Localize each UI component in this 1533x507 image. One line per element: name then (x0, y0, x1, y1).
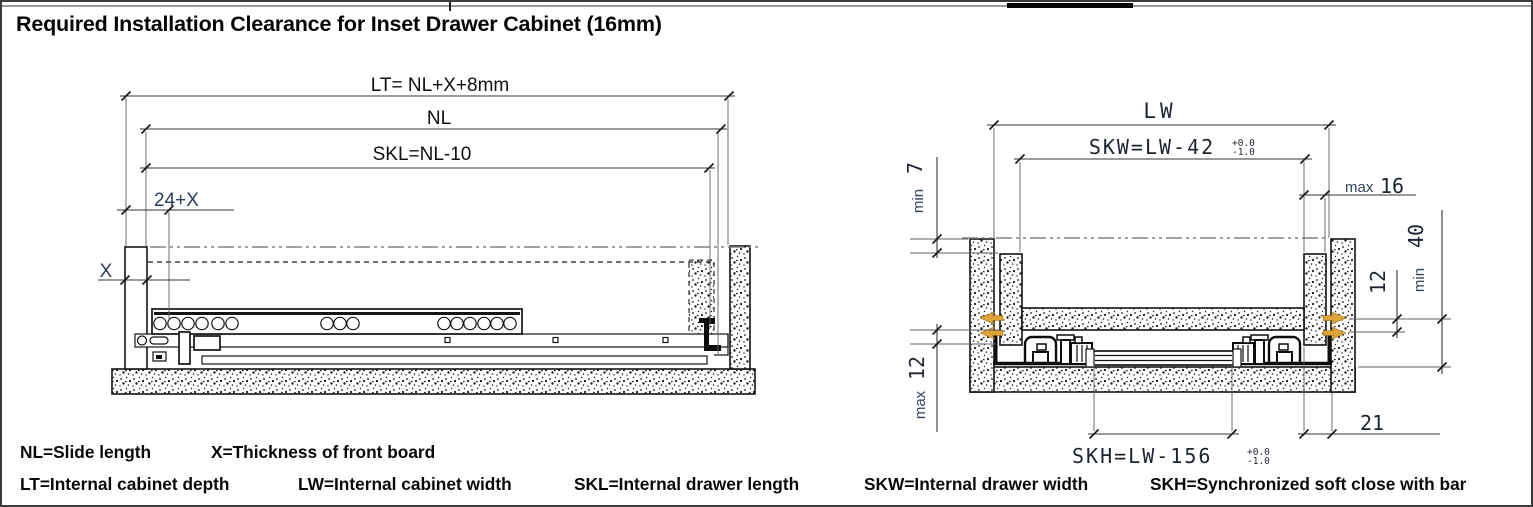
dim-label-21: 21 (1360, 411, 1384, 435)
dim-label-min7-value: 7 (903, 162, 927, 174)
dim-label-min40-word: min (1411, 268, 1428, 292)
dim-label-max12-word: max (912, 390, 929, 419)
dim-label-lt: LT= NL+X+8mm (371, 75, 510, 96)
legend-lt: LT=Internal cabinet depth (20, 474, 229, 495)
drawer-side-panel-left (1000, 254, 1022, 345)
dim-label-min7-word: min (910, 189, 927, 213)
legend-nl: NL=Slide length (20, 442, 151, 463)
synchronization-bar (1086, 349, 1241, 367)
front-view-diagram: LW SKW=LW-42 +0.0 -1.0 max 16 21 SKH=LW-… (903, 99, 1451, 468)
cabinet-back-panel (730, 246, 750, 369)
legend-x: X=Thickness of front board (211, 442, 435, 463)
dim-label-skh: SKH=LW-156 (1072, 444, 1212, 468)
dim-label-max16-value: 16 (1380, 174, 1404, 198)
dim-label-max12-value: 12 (905, 356, 929, 380)
technical-drawing: LT= NL+X+8mm NL SKL=NL-10 24+X X (2, 2, 1533, 507)
cabinet-bottom-board (112, 369, 755, 394)
dimensions-left (98, 92, 735, 285)
legend-skh: SKH=Synchronized soft close with bar (1150, 474, 1466, 495)
dim-label-x: X (100, 261, 113, 282)
cabinet-bottom-board-front (970, 367, 1355, 392)
skh-tolerance-minus: -1.0 (1247, 456, 1270, 467)
legend-skl: SKL=Internal drawer length (574, 474, 799, 495)
legend-skw: SKW=Internal drawer width (864, 474, 1088, 495)
drawer-bottom-board (1022, 308, 1304, 330)
dim-label-skl: SKL=NL-10 (373, 144, 472, 165)
dim-label-min40-value: 40 (1404, 224, 1428, 248)
drawer-slide-side-view (135, 309, 728, 364)
dim-label-lw: LW (1143, 99, 1176, 123)
side-view-diagram: LT= NL+X+8mm NL SKL=NL-10 24+X X (98, 75, 759, 394)
drawing-sheet: Required Installation Clearance for Inse… (0, 0, 1533, 507)
legend-lw: LW=Internal cabinet width (298, 474, 512, 495)
drawer-front-board (125, 247, 147, 369)
dim-label-24x: 24+X (154, 190, 199, 211)
dim-label-skw: SKW=LW-42 (1089, 135, 1215, 159)
dim-label-nl: NL (427, 108, 451, 129)
dim-label-max16-word: max (1345, 179, 1374, 196)
skw-tolerance-minus: -1.0 (1232, 147, 1255, 158)
dim-label-12: 12 (1366, 270, 1390, 294)
drawer-side-panel-right (1304, 254, 1326, 345)
